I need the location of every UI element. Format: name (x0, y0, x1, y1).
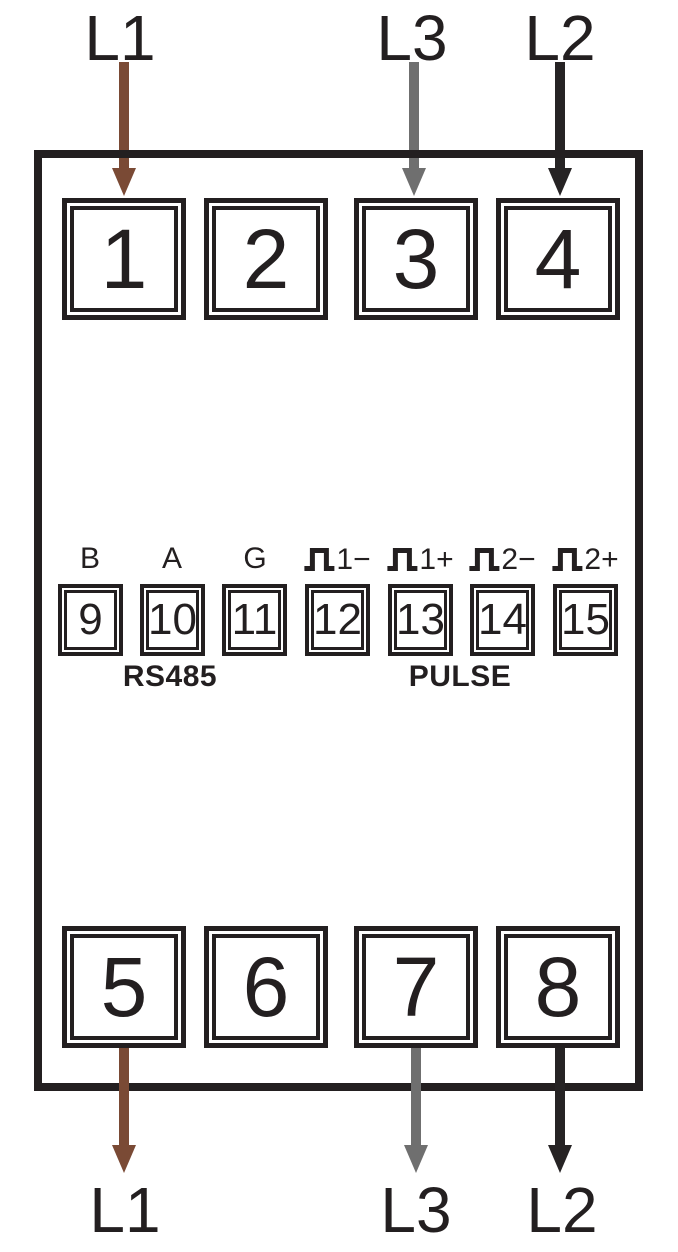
terminal-9: 9 (58, 584, 123, 656)
terminal-15-inner: 15 (559, 590, 612, 650)
terminal-number: 10 (148, 598, 197, 642)
wire-shaft (409, 62, 419, 169)
pin-label-pulse1-plus: 1+ (386, 548, 453, 571)
arrowhead-down-icon (548, 1145, 572, 1173)
terminal-5: 5 (62, 926, 186, 1048)
terminal-6-inner: 6 (212, 934, 320, 1040)
phase-label-l2-bottom: L2 (526, 1178, 597, 1242)
terminal-number: 6 (243, 945, 290, 1029)
pulse-icon (303, 548, 335, 571)
terminal-3: 3 (354, 198, 478, 320)
terminal-4: 4 (496, 198, 620, 320)
arrowhead-down-icon (402, 168, 426, 196)
pin-label-text: G (243, 548, 266, 570)
terminal-number: 12 (313, 598, 362, 642)
phase-label-l3-top: L3 (376, 6, 447, 70)
wire-shaft (555, 62, 565, 169)
terminal-number: 11 (232, 598, 278, 642)
terminal-14: 14 (470, 584, 535, 656)
pin-label-g: G (243, 548, 266, 570)
arrowhead-down-icon (404, 1145, 428, 1173)
terminal-number: 13 (396, 598, 445, 642)
terminal-number: 1 (101, 217, 148, 301)
wire-shaft (119, 62, 129, 169)
terminal-13-inner: 13 (394, 590, 447, 650)
terminal-number: 4 (535, 217, 582, 301)
phase-label-l3-bottom: L3 (380, 1178, 451, 1242)
terminal-2-inner: 2 (212, 206, 320, 312)
terminal-12-inner: 12 (311, 590, 364, 650)
pin-label-pulse2-minus: 2− (468, 548, 535, 571)
pin-label-text: A (162, 548, 182, 570)
arrowhead-down-icon (112, 1145, 136, 1173)
arrowhead-down-icon (548, 168, 572, 196)
terminal-1: 1 (62, 198, 186, 320)
terminal-number: 2 (243, 217, 290, 301)
terminal-11-inner: 11 (228, 590, 281, 650)
terminal-4-inner: 4 (504, 206, 612, 312)
phase-label-l2-top: L2 (524, 6, 595, 70)
pulse-label: PULSE (409, 662, 512, 692)
wire-shaft (411, 1048, 421, 1147)
wire-shaft (555, 1048, 565, 1147)
terminal-2: 2 (204, 198, 328, 320)
pin-label-text: 2+ (584, 549, 618, 571)
terminal-number: 7 (393, 945, 440, 1029)
pulse-icon (468, 548, 500, 571)
pulse-icon (551, 548, 583, 571)
pin-label-text: 1+ (419, 549, 453, 571)
terminal-14-inner: 14 (476, 590, 529, 650)
terminal-number: 9 (78, 598, 102, 642)
pin-label-a: A (162, 548, 182, 570)
terminal-5-inner: 5 (70, 934, 178, 1040)
pin-label-b: B (80, 548, 100, 570)
terminal-number: 15 (561, 598, 610, 642)
terminal-10-inner: 10 (146, 590, 199, 650)
terminal-7-inner: 7 (362, 934, 470, 1040)
terminal-6: 6 (204, 926, 328, 1048)
wiring-diagram: L1 L3 L2 1 2 3 4 B A G 1− 1+ (0, 0, 678, 1252)
terminal-3-inner: 3 (362, 206, 470, 312)
terminal-15: 15 (553, 584, 618, 656)
wire-shaft (119, 1048, 129, 1147)
arrowhead-down-icon (112, 168, 136, 196)
pin-label-text: 1− (336, 549, 370, 571)
terminal-10: 10 (140, 584, 205, 656)
terminal-11: 11 (222, 584, 287, 656)
terminal-8-inner: 8 (504, 934, 612, 1040)
pin-label-text: B (80, 548, 100, 570)
phase-label-l1-top: L1 (84, 6, 155, 70)
pin-label-pulse1-minus: 1− (303, 548, 370, 571)
terminal-number: 14 (478, 598, 527, 642)
terminal-number: 3 (393, 217, 440, 301)
terminal-number: 8 (535, 945, 582, 1029)
terminal-8: 8 (496, 926, 620, 1048)
pulse-icon (386, 548, 418, 571)
rs485-label: RS485 (123, 662, 217, 692)
pin-label-pulse2-plus: 2+ (551, 548, 618, 571)
terminal-7: 7 (354, 926, 478, 1048)
pin-label-text: 2− (501, 549, 535, 571)
terminal-1-inner: 1 (70, 206, 178, 312)
terminal-12: 12 (305, 584, 370, 656)
terminal-9-inner: 9 (64, 590, 117, 650)
phase-label-l1-bottom: L1 (89, 1178, 160, 1242)
terminal-number: 5 (101, 945, 148, 1029)
terminal-13: 13 (388, 584, 453, 656)
